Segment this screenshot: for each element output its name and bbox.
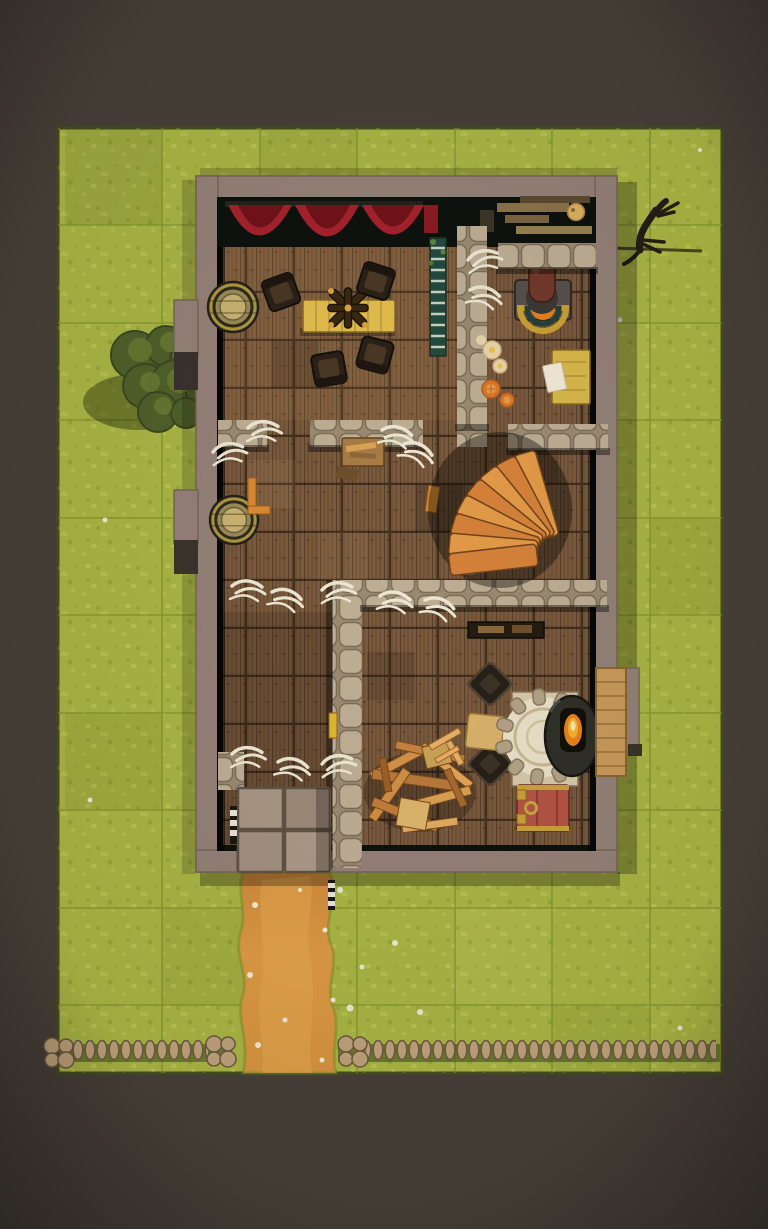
battle-map-viewport[interactable] (0, 0, 768, 1229)
vignette-overlay (0, 0, 768, 1229)
battle-map-canvas[interactable] (0, 0, 768, 1229)
